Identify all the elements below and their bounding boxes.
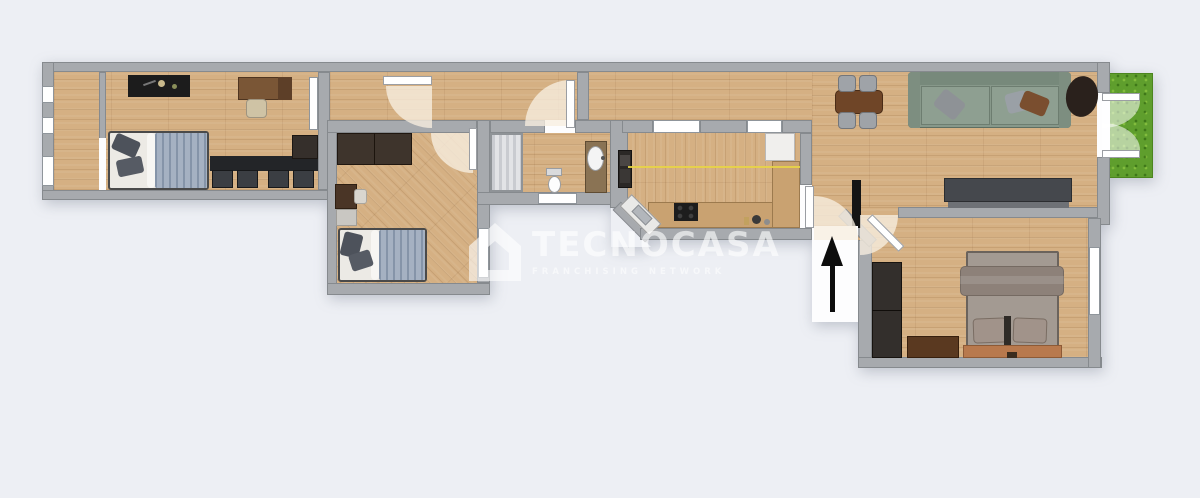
room1-seat-3 bbox=[268, 170, 289, 188]
window-left-2 bbox=[42, 117, 54, 134]
window-kitchen-1 bbox=[653, 120, 700, 133]
room1-seat-1 bbox=[212, 170, 233, 188]
bathroom-shower bbox=[490, 133, 523, 192]
master-bed-pillow-1 bbox=[973, 317, 1008, 343]
wall-kitchen-top-1 bbox=[622, 120, 653, 133]
room1-cabinet bbox=[292, 135, 318, 159]
wall-living-right-bottom bbox=[1097, 157, 1110, 225]
radiator-room1 bbox=[309, 77, 318, 130]
window-bathroom bbox=[538, 193, 577, 204]
door-leaf-room1 bbox=[383, 76, 432, 85]
room2-bed-duvet-fold bbox=[371, 230, 379, 280]
opening-veranda bbox=[99, 138, 106, 190]
door-leaf-entry bbox=[805, 186, 814, 228]
window-master bbox=[1089, 247, 1100, 315]
balcony-door-leaf-1 bbox=[1102, 93, 1140, 101]
wall-room2-top bbox=[327, 120, 477, 133]
kitchen-oven-glass-1 bbox=[620, 155, 630, 166]
dining-chair-1 bbox=[838, 75, 856, 92]
master-bed-duvet-highlight bbox=[960, 276, 1064, 284]
room1-console-decor-2 bbox=[172, 84, 177, 89]
wall-kitchen-right bbox=[800, 133, 812, 185]
tv-stand bbox=[944, 178, 1072, 202]
dining-chair-2 bbox=[859, 75, 877, 92]
wall-room1-bottom bbox=[42, 190, 330, 200]
room1-bed-duvet-fold bbox=[147, 133, 155, 188]
master-bed-knob bbox=[1007, 352, 1017, 358]
wall-room2-bottom bbox=[327, 283, 490, 295]
dining-chair-3 bbox=[838, 112, 856, 129]
window-room2 bbox=[478, 228, 489, 278]
room1-seat-4 bbox=[293, 170, 314, 188]
master-wardrobe-seam bbox=[872, 310, 902, 311]
wall-corridor-stub bbox=[577, 72, 589, 120]
wall-kitchen-bottom bbox=[640, 228, 812, 240]
room1-desk-chair bbox=[246, 99, 267, 118]
room2-cabinet bbox=[336, 209, 357, 226]
window-left-1 bbox=[42, 86, 54, 103]
room2-desk-chair bbox=[354, 189, 367, 204]
floorplan-page: TECNOCASA FRANCHISING NETWORK bbox=[0, 0, 1200, 498]
room2-bed-blanket bbox=[379, 230, 425, 280]
bathroom-faucet bbox=[601, 156, 605, 160]
room1-console-decor-1 bbox=[158, 80, 165, 87]
entrance-arrow-head bbox=[821, 236, 843, 266]
kitchen-item-jar bbox=[744, 217, 749, 225]
dining-chair-4 bbox=[859, 112, 877, 129]
kitchen-white-cabinet bbox=[765, 133, 795, 161]
door-leaf-room2 bbox=[469, 128, 477, 170]
room1-desk-side bbox=[278, 77, 292, 100]
dining-table bbox=[835, 90, 883, 114]
wall-veranda-partition bbox=[99, 72, 106, 140]
kitchen-counter-right bbox=[772, 161, 800, 228]
wall-kitchen-top-3 bbox=[782, 120, 812, 133]
sofa-arm-left bbox=[908, 72, 920, 128]
wall-master-left bbox=[858, 240, 872, 368]
kitchen-yellow-line bbox=[628, 166, 800, 168]
master-dresser bbox=[907, 336, 959, 358]
tv-stand-strip bbox=[948, 202, 1069, 208]
wall-living-bottom bbox=[898, 207, 1110, 218]
master-bed-pillow-2 bbox=[1013, 317, 1048, 343]
kitchen-item-bowl bbox=[764, 219, 770, 225]
wall-kitchen-top-2 bbox=[700, 120, 747, 133]
floorplan bbox=[0, 0, 1200, 498]
wall-top bbox=[42, 62, 1108, 72]
room1-seat-2 bbox=[237, 170, 258, 188]
window-kitchen-2 bbox=[747, 120, 782, 133]
balcony-door-leaf-2 bbox=[1102, 150, 1140, 158]
kitchen-cooktop bbox=[674, 203, 698, 221]
bathroom-toilet-bowl bbox=[548, 176, 561, 193]
wall-master-bottom bbox=[858, 357, 1102, 368]
bathroom-toilet-tank bbox=[546, 168, 562, 176]
door-leaf-bathroom bbox=[566, 80, 575, 128]
kitchen-item-kettle bbox=[752, 215, 761, 224]
room2-wardrobe-seam bbox=[374, 133, 375, 165]
window-left-3 bbox=[42, 156, 54, 186]
entrance-arrow-shaft bbox=[830, 264, 835, 312]
wall-living-right-top bbox=[1097, 62, 1110, 93]
sofa-back bbox=[908, 72, 1071, 85]
room1-bed-blanket bbox=[155, 133, 207, 188]
kitchen-oven-glass-2 bbox=[620, 169, 630, 183]
